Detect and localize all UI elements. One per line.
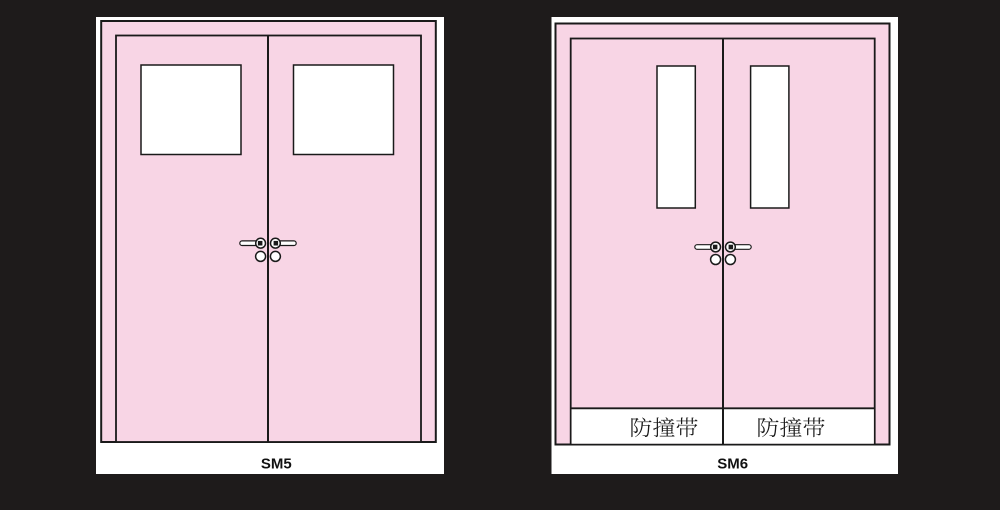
svg-text:SM6: SM6 (717, 455, 748, 472)
svg-text:SM5: SM5 (261, 455, 292, 472)
